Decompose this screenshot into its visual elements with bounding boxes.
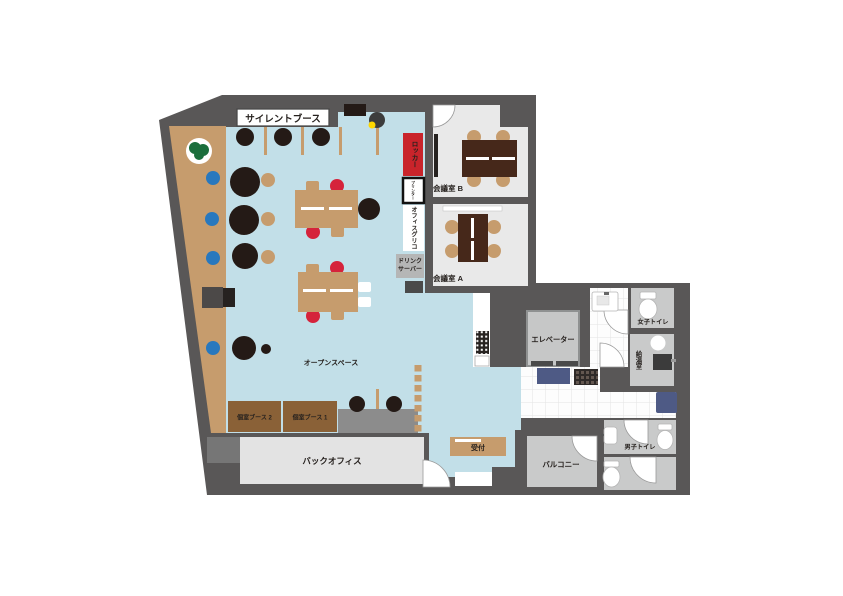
work-desk — [338, 409, 418, 433]
counter-stool — [206, 171, 220, 185]
chair — [445, 244, 459, 258]
urinal-sensor — [601, 434, 604, 437]
drink-server-label-2: サーバー — [398, 265, 422, 273]
counter-stool — [206, 341, 220, 355]
chair — [487, 244, 501, 258]
chair — [487, 220, 501, 234]
meeting-room-a-label: 会議室 A — [433, 273, 464, 283]
end-chair — [358, 198, 380, 220]
kitchen-counter — [653, 354, 672, 370]
table-stool — [261, 250, 275, 264]
whiteboard — [434, 134, 438, 177]
drink-server-label-1: ドリンク — [398, 257, 422, 265]
booth-partition — [376, 127, 379, 155]
chair-white — [358, 282, 371, 292]
meeting-room-b-label: 会議室 B — [433, 183, 464, 193]
doormat — [574, 369, 598, 385]
round-table — [230, 167, 260, 197]
booth-partition — [339, 127, 342, 155]
toilet-bowl — [639, 299, 657, 319]
table-stool — [261, 173, 275, 187]
toilet-bowl — [657, 431, 673, 450]
booth-partition — [264, 127, 267, 155]
reception-counter — [455, 439, 481, 442]
balcony-label: バルコニー — [542, 460, 579, 469]
round-table — [232, 243, 258, 269]
toilet-tank — [658, 424, 672, 430]
reception-label: 受付 — [471, 443, 485, 452]
server-cabinet — [405, 281, 423, 293]
table-seam — [471, 241, 474, 260]
office-floor-plan: サイレントブース 会議室 B 会議室 A ロッカー プリンター オフィスグリコ … — [0, 0, 843, 596]
counter-stool — [206, 251, 220, 265]
mens-toilet-label: 男子トイレ — [625, 443, 656, 451]
table-seam — [303, 289, 326, 292]
urinal — [604, 427, 617, 444]
elevator-label: エレベーター — [531, 335, 574, 344]
silent-booth-label: サイレントブース — [245, 113, 321, 125]
chair — [445, 220, 459, 234]
floor-plan-canvas: サイレントブース 会議室 B 会議室 A ロッカー プリンター オフィスグリコ … — [0, 0, 843, 596]
entrance-window — [455, 472, 492, 486]
private-booth-2-label: 個室ブース 2 — [236, 414, 272, 422]
desk-chair — [386, 396, 402, 412]
round-stool — [261, 344, 271, 354]
table-seam — [329, 207, 352, 210]
booth-chair — [236, 128, 254, 146]
chair-white — [358, 297, 371, 307]
bench — [656, 392, 677, 413]
table-stool — [261, 212, 275, 226]
kitchenette-wall — [628, 386, 676, 392]
sink-faucet — [604, 292, 609, 295]
desk-chair-accent — [369, 122, 376, 129]
desk-chair — [349, 396, 365, 412]
cabinet — [202, 287, 223, 308]
kitchen-sink-round — [651, 336, 666, 351]
drink-server-unit — [396, 254, 424, 278]
table-seam — [330, 289, 353, 292]
side-desk — [344, 104, 366, 116]
counter-stool — [205, 212, 219, 226]
toilet-tank — [604, 461, 619, 467]
womens-toilet-label: 女子トイレ — [638, 318, 669, 326]
booth-chair — [274, 128, 292, 146]
back-office-step — [207, 437, 240, 463]
private-booth-1-label: 個室ブース 1 — [292, 414, 328, 422]
table-seam — [492, 157, 515, 160]
booth-chair — [312, 128, 330, 146]
table-seam — [471, 218, 474, 238]
elevator-door — [556, 361, 578, 366]
back-office-label: バックオフィス — [302, 456, 361, 466]
magazine-rack — [476, 331, 489, 354]
toilet-tank — [640, 292, 656, 299]
round-table — [229, 205, 259, 235]
bench — [537, 368, 570, 384]
sink-basin — [597, 296, 609, 305]
kitchenette-label: 給湯室 — [635, 349, 642, 371]
booth-partition — [301, 127, 304, 155]
kitchen-faucet — [671, 359, 676, 362]
entrance-shelf — [473, 293, 490, 367]
shelf-box — [475, 356, 489, 366]
elevator-door — [531, 361, 553, 366]
table-seam — [301, 207, 324, 210]
round-table — [232, 336, 256, 360]
cabinet-dark — [223, 288, 235, 307]
office-glico-label: オフィスグリコ — [410, 206, 417, 250]
meeting-room-b-corner-wall — [500, 105, 528, 127]
open-space-label: オープンスペース — [304, 358, 359, 367]
table-seam — [466, 157, 489, 160]
toilet-bowl — [603, 467, 620, 487]
printer-label: プリンター — [410, 180, 415, 200]
plant-icon — [194, 150, 204, 160]
whiteboard — [443, 206, 502, 211]
